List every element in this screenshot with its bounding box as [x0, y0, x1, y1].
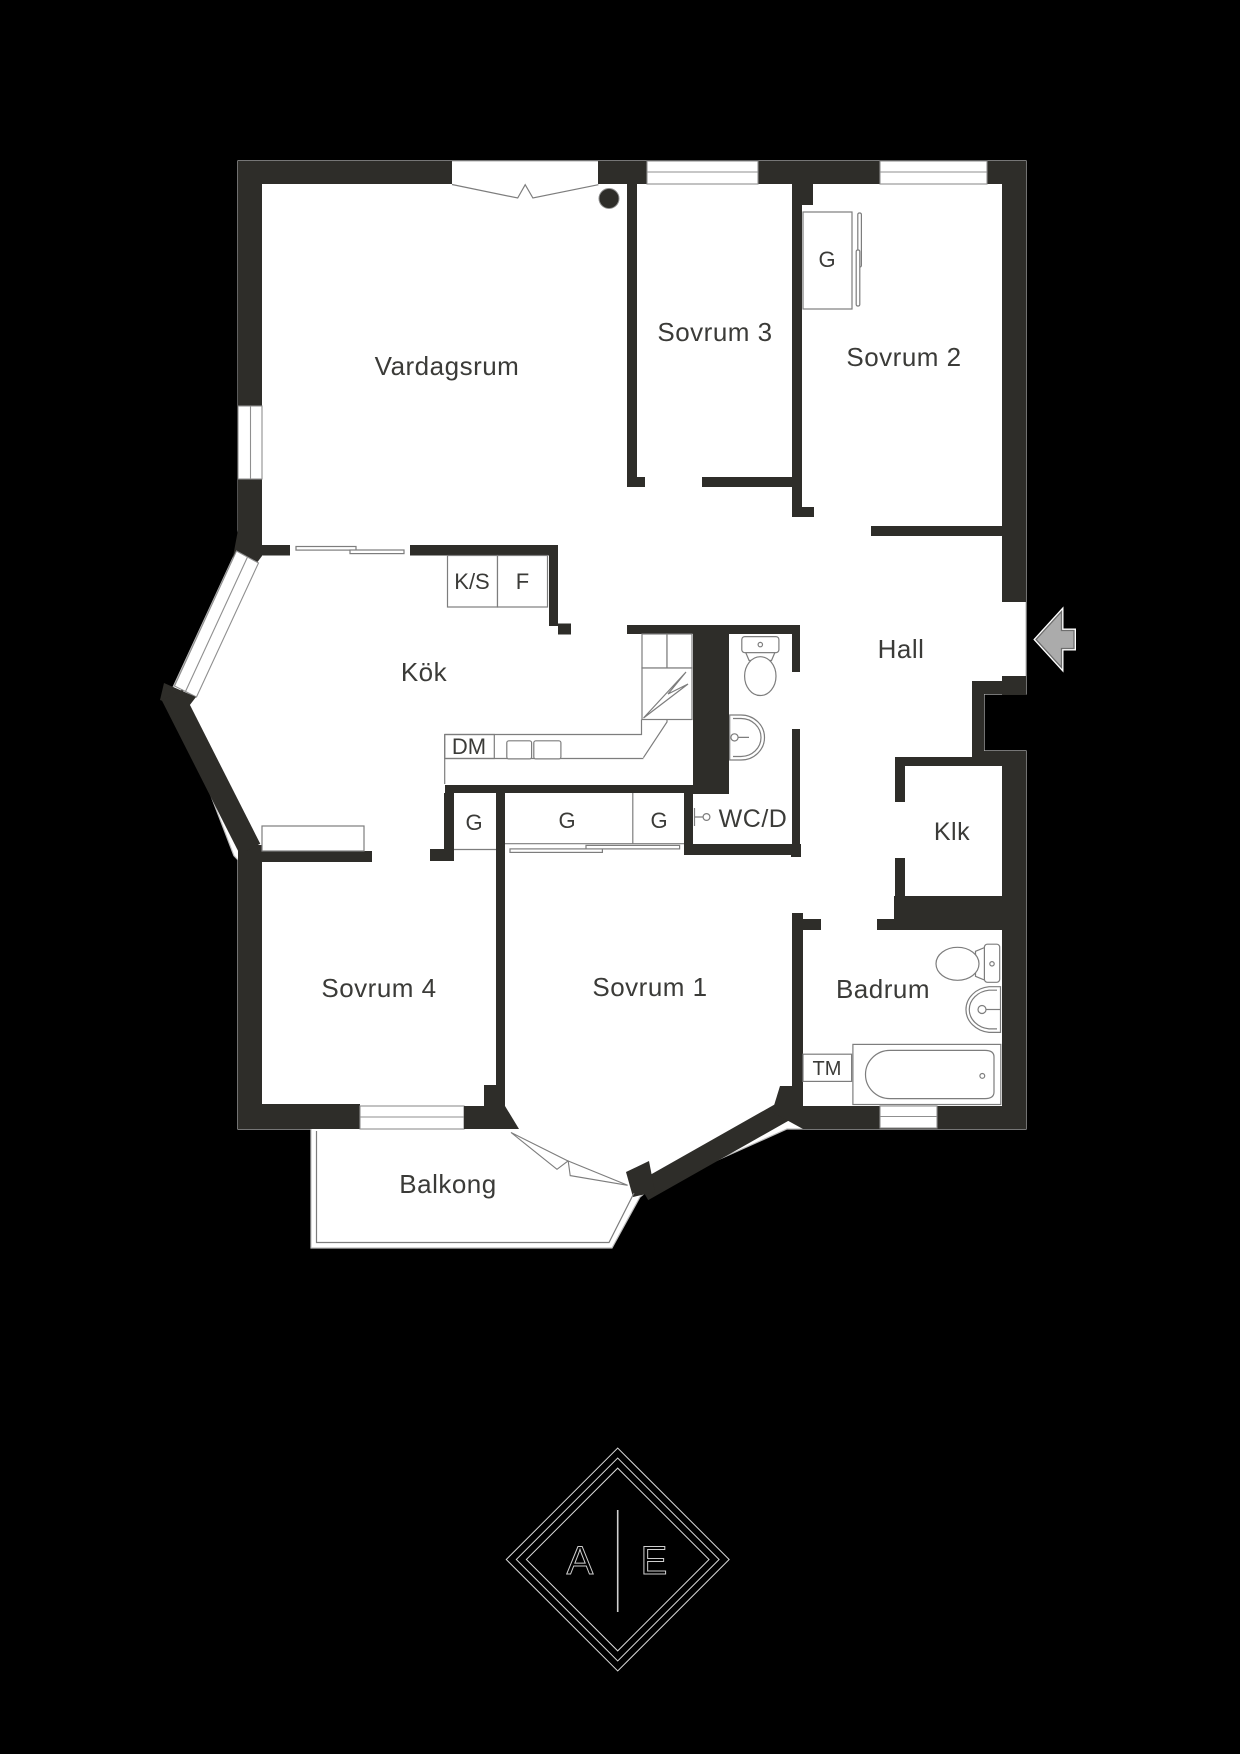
svg-text:G: G: [650, 808, 667, 833]
svg-text:TM: TM: [813, 1058, 842, 1080]
svg-text:Balkong: Balkong: [399, 1169, 496, 1199]
svg-text:DM: DM: [452, 734, 486, 759]
svg-text:Badrum: Badrum: [836, 974, 930, 1004]
svg-text:Klk: Klk: [934, 818, 970, 846]
svg-text:G: G: [465, 810, 482, 835]
svg-text:Kök: Kök: [401, 657, 448, 687]
svg-text:WC/D: WC/D: [719, 805, 788, 833]
svg-text:Sovrum 3: Sovrum 3: [657, 317, 772, 347]
svg-text:Sovrum 1: Sovrum 1: [592, 972, 707, 1002]
svg-text:E: E: [641, 1539, 668, 1583]
svg-text:Vardagsrum: Vardagsrum: [375, 351, 520, 381]
svg-text:A: A: [567, 1539, 594, 1583]
svg-text:F: F: [516, 569, 529, 594]
svg-text:Sovrum 2: Sovrum 2: [846, 342, 961, 372]
svg-text:G: G: [818, 247, 835, 272]
svg-text:K/S: K/S: [454, 569, 489, 594]
svg-text:Sovrum 4: Sovrum 4: [321, 973, 436, 1003]
svg-text:Hall: Hall: [878, 634, 925, 664]
svg-text:G: G: [558, 808, 575, 833]
